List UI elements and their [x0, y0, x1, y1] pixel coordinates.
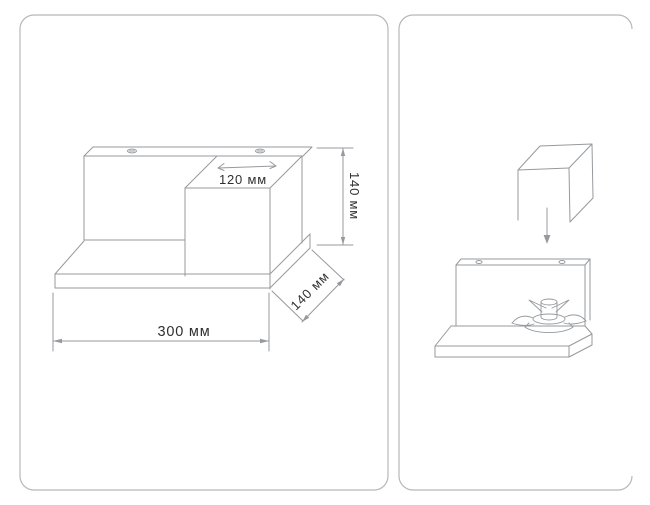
illustration-canvas: 120 мм 140 мм 140 мм 300 мм [0, 0, 650, 505]
right-panel [399, 15, 632, 490]
shelf-back-panel [84, 147, 312, 240]
height-label: 140 мм [347, 172, 362, 220]
right-panel-border [399, 15, 632, 490]
dimension-labels: 120 мм 140 мм 140 мм 300 мм [158, 172, 362, 340]
left-panel-border [20, 15, 388, 490]
mount-bracket-icon [512, 299, 586, 333]
width-label: 300 мм [158, 324, 211, 340]
down-arrow-icon [544, 208, 551, 244]
mount-hole-icon [559, 261, 565, 264]
shelf-bottom-board [55, 234, 310, 288]
mount-hole-icon [476, 261, 482, 264]
assembly-drawing [435, 144, 593, 357]
left-panel: 120 мм 140 мм 140 мм 300 мм [20, 15, 388, 490]
dimension-box-width [218, 162, 276, 171]
shelf-dimension-drawing [53, 147, 353, 351]
dimension-width [53, 293, 269, 351]
depth-label: 140 мм [288, 269, 333, 314]
box-width-label: 120 мм [219, 172, 267, 187]
screw-hole-icon [128, 149, 137, 153]
assembly-bottom-board [435, 326, 592, 357]
assembly-cover-box [518, 144, 593, 222]
screw-hole-icon [256, 149, 265, 153]
